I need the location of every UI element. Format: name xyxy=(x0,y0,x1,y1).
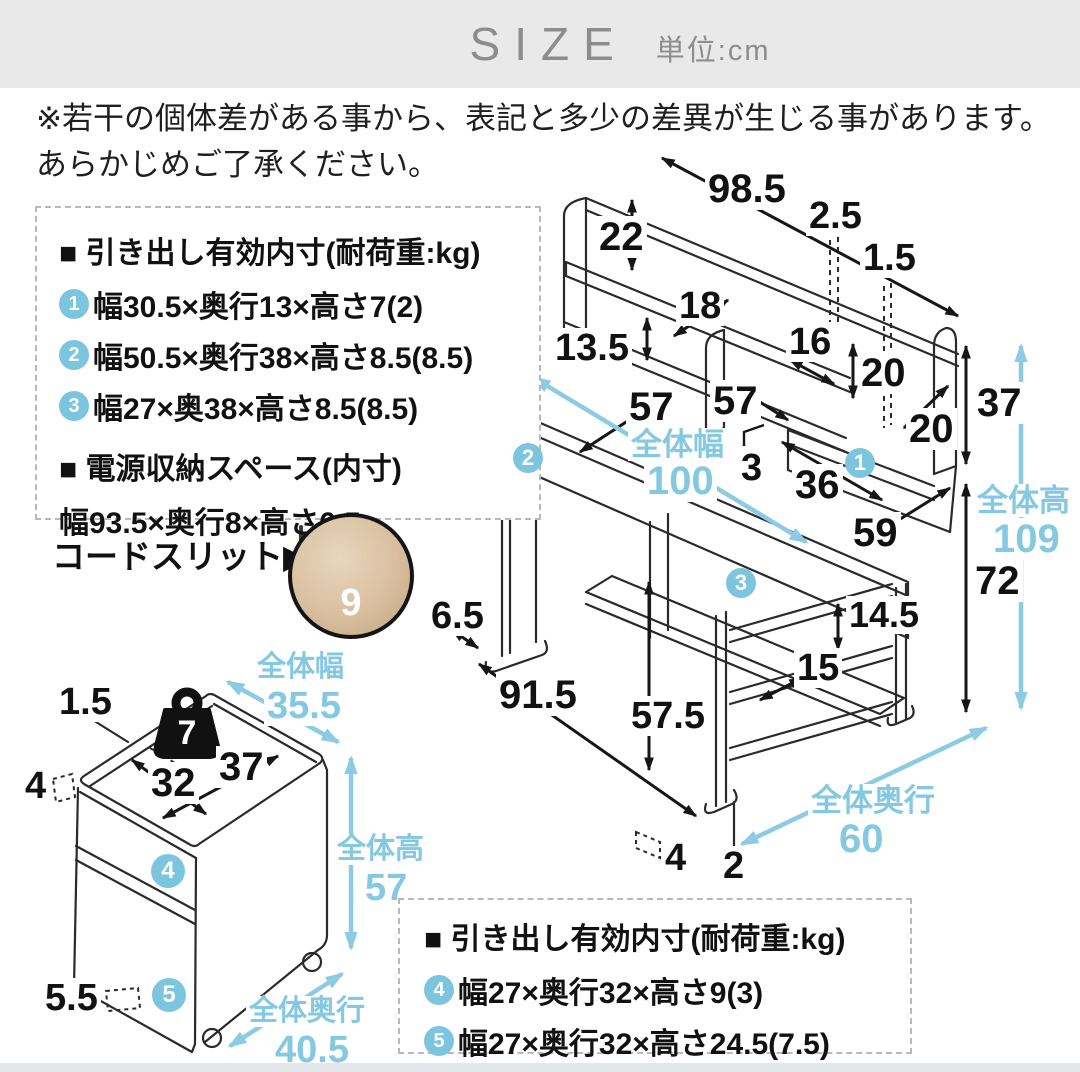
num-badge-4: 4 xyxy=(424,975,454,1005)
gap-3-bracket xyxy=(744,425,764,446)
dim-compartment-width: 16 xyxy=(786,322,834,362)
spec-bottom-item-5-text: 幅27×奥行32×高さ24.5(7.5) xyxy=(458,1019,830,1063)
dim-shelf-depth: 18 xyxy=(676,286,724,326)
cab-overall-width-label: 全体幅 xyxy=(254,652,347,683)
desk-badge-1: 1 xyxy=(845,448,875,478)
dim-compartment-height: 20 xyxy=(858,352,909,394)
overall-height-value: 109 xyxy=(990,518,1063,560)
cab-overall-height-label: 全体高 xyxy=(334,834,427,865)
cab-badge-4: 4 xyxy=(151,854,185,888)
dim-right-divider: 1.5 xyxy=(860,238,919,278)
overall-depth-label: 全体奥行 xyxy=(808,784,938,817)
overall-width-value: 100 xyxy=(644,460,717,502)
overall-depth-value: 60 xyxy=(836,818,887,860)
cab-side-gap-4: 4 xyxy=(22,766,49,806)
dim-shelf-gap-15: 15 xyxy=(794,648,842,688)
dim-right-shelf-width-36: 36 xyxy=(792,464,843,506)
spec-bottom-item-4: 4 幅27×奥行32×高さ9(3) xyxy=(424,968,910,1012)
num-badge-3: 3 xyxy=(59,391,89,421)
num-badge-5: 5 xyxy=(424,1026,454,1056)
spec-top-item-1-text: 幅30.5×奥行13×高さ7(2) xyxy=(93,282,423,326)
dim-hutch-height: 37 xyxy=(974,382,1025,424)
spec-bottom-item-5: 5 幅27×奥行32×高さ24.5(7.5) xyxy=(424,1019,910,1063)
cab-load-capacity-7: 7 xyxy=(170,714,204,753)
overall-width-label: 全体幅 xyxy=(628,428,727,461)
spec-top-item-3: 3 幅27×奥38×高さ8.5(8.5) xyxy=(59,384,539,428)
cord-slit-width-value: 9 xyxy=(318,582,384,625)
dim-back-divider: 2.5 xyxy=(806,196,865,236)
bottom-divider-bar xyxy=(0,1063,1080,1072)
spec-top-heading: ■ 引き出し有効内寸(耐荷重:kg) xyxy=(59,228,539,272)
desk-badge-2: 2 xyxy=(513,443,543,473)
cab-overall-depth-label: 全体奥行 xyxy=(246,996,368,1027)
drawer-spec-box-top: ■ 引き出し有効内寸(耐荷重:kg) 1 幅30.5×奥行13×高さ7(2) 2… xyxy=(35,206,541,520)
dim-desk-top-width: 98.5 xyxy=(705,168,789,210)
power-space-heading: ■ 電源収納スペース(内寸) xyxy=(59,444,539,488)
cab-inner-width-37: 37 xyxy=(216,746,267,788)
cab-top-edge-15: 1.5 xyxy=(56,682,115,722)
dim-inner-width-915: 91.5 xyxy=(496,674,580,716)
dim-shelf-gap-145: 14.5 xyxy=(846,596,922,634)
num-badge-2: 2 xyxy=(59,340,89,370)
dim-shelf-height: 13.5 xyxy=(552,328,632,368)
dim-knee-clearance-575: 57.5 xyxy=(628,696,708,736)
dim-overhang-65: 6.5 xyxy=(428,596,487,636)
dim-right-width-57: 57 xyxy=(710,380,761,422)
spec-bottom-heading: ■ 引き出し有効内寸(耐荷重:kg) xyxy=(424,914,910,958)
dim-desktop-depth-59: 59 xyxy=(850,512,901,554)
spec-top-item-1: 1 幅30.5×奥行13×高さ7(2) xyxy=(59,282,539,326)
desk-foot-dashed-box xyxy=(636,832,660,858)
spec-top-item-3-text: 幅27×奥38×高さ8.5(8.5) xyxy=(93,384,418,428)
cord-slit-label: コードスリット▶ xyxy=(52,530,308,578)
size-diagram-page: { "colors": { "accent_blue": "#85c8e2", … xyxy=(0,0,1080,1072)
dim-top-shelf-height: 22 xyxy=(596,216,647,258)
drawer-spec-box-bottom: ■ 引き出し有効内寸(耐荷重:kg) 4 幅27×奥行32×高さ9(3) 5 幅… xyxy=(398,898,912,1054)
dim-left-width-57: 57 xyxy=(626,386,677,428)
dim-foot-height-2: 2 xyxy=(720,846,747,886)
spec-top-item-2-text: 幅50.5×奥行38×高さ8.5(8.5) xyxy=(93,333,473,377)
cab-overall-width-value: 35.5 xyxy=(264,686,344,726)
dim-compartment-depth: 20 xyxy=(906,408,957,450)
cab-badge-5: 5 xyxy=(152,978,186,1012)
dim-desk-height-72: 72 xyxy=(972,560,1023,602)
dim-foot-depth-4: 4 xyxy=(662,838,689,878)
dim-slot-gap-3: 3 xyxy=(738,448,765,488)
cab-inner-depth-32: 32 xyxy=(148,762,199,804)
num-badge-1: 1 xyxy=(59,289,89,319)
spec-bottom-item-4-text: 幅27×奥行32×高さ9(3) xyxy=(458,968,763,1012)
cab-base-height-55: 5.5 xyxy=(42,978,101,1018)
overall-height-label: 全体高 xyxy=(974,484,1073,517)
spec-top-item-2: 2 幅50.5×奥行38×高さ8.5(8.5) xyxy=(59,333,539,377)
desk-badge-3: 3 xyxy=(726,568,756,598)
